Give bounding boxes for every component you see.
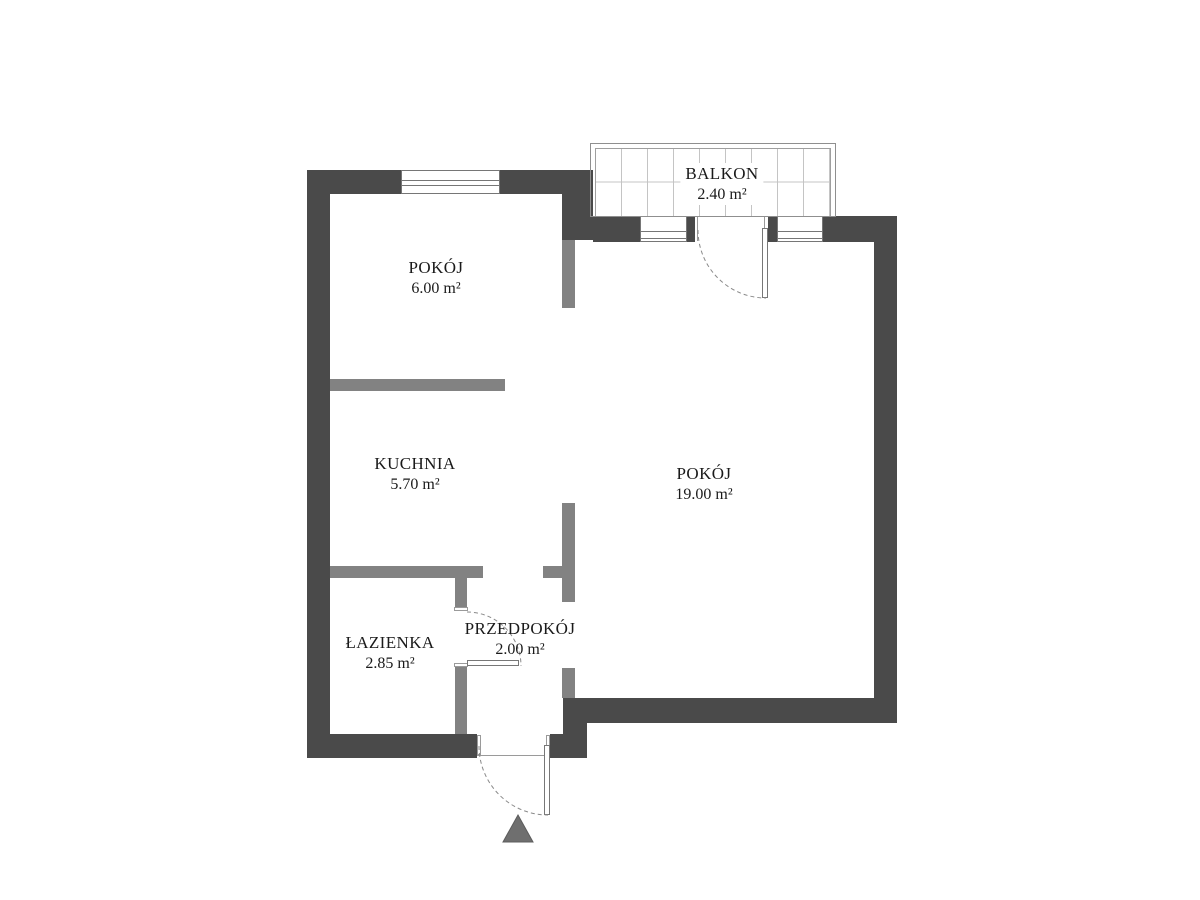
- partition-bathroom-right-lower: [455, 667, 467, 734]
- room-area: 5.70 m²: [374, 474, 455, 495]
- wall-bottom-entrance-a: [307, 734, 477, 758]
- room-label-pokoj-duzy: POKÓJ 19.00 m²: [675, 463, 732, 505]
- window-pane-line: [402, 180, 499, 181]
- wall-mullion-right: [768, 216, 777, 242]
- wall-top-bigroom-a: [593, 216, 640, 242]
- window-pane-line: [641, 231, 686, 232]
- room-label-balkon: BALKON 2.40 m²: [680, 163, 763, 205]
- room-name: ŁAZIENKA: [345, 632, 434, 653]
- window-pane-line: [402, 185, 499, 186]
- room-area: 6.00 m²: [409, 278, 464, 299]
- entrance-door-leaf: [544, 745, 550, 815]
- room-label-przedpokoj: PRZEDPOKÓJ 2.00 m²: [465, 618, 576, 660]
- wall-top-left-b: [500, 170, 593, 194]
- bathroom-door-leaf: [467, 660, 519, 666]
- window-bigroom-left: [640, 216, 687, 242]
- entrance-arrow-icon: [503, 815, 533, 842]
- door-swing-overlay: [0, 0, 1200, 900]
- wall-bottom-bigroom: [563, 698, 897, 723]
- partition-passage-vertical: [562, 503, 575, 602]
- room-area: 2.40 m²: [685, 184, 758, 205]
- room-name: POKÓJ: [409, 257, 464, 278]
- window-pane-line: [778, 231, 822, 232]
- room-name: PRZEDPOKÓJ: [465, 618, 576, 639]
- room-label-kuchnia: KUCHNIA 5.70 m²: [374, 453, 455, 495]
- window-bigroom-right: [777, 216, 823, 242]
- bathroom-door-jamb: [454, 607, 468, 611]
- balcony-door-leaf: [762, 228, 768, 298]
- partition-bathroom-right-upper: [455, 578, 467, 610]
- room-name: KUCHNIA: [374, 453, 455, 474]
- partition-passage-stub: [543, 566, 562, 578]
- balcony-door-arc: [698, 230, 766, 298]
- room-name: BALKON: [685, 163, 758, 184]
- entrance-threshold: [477, 755, 550, 756]
- wall-bottom-entrance-b: [550, 734, 587, 758]
- entrance-door-jamb: [477, 735, 481, 755]
- partition-hall-right-lower: [562, 668, 575, 698]
- room-area: 19.00 m²: [675, 484, 732, 505]
- window-pane-line: [641, 238, 686, 239]
- entrance-door-arc: [479, 746, 548, 815]
- wall-mullion-left: [687, 216, 695, 242]
- window-small-room: [401, 170, 500, 194]
- balcony-door-jamb: [697, 217, 698, 241]
- wall-right: [874, 216, 897, 723]
- wall-step: [562, 194, 593, 240]
- room-name: POKÓJ: [675, 463, 732, 484]
- window-pane-line: [778, 238, 822, 239]
- room-area: 2.85 m²: [345, 653, 434, 674]
- partition-bigroom-left-upper: [562, 240, 575, 308]
- room-area: 2.00 m²: [465, 639, 576, 660]
- room-label-lazienka: ŁAZIENKA 2.85 m²: [345, 632, 434, 674]
- wall-left: [307, 170, 330, 758]
- partition-kitchen-top: [330, 379, 505, 391]
- floor-plan: BALKON 2.40 m² POKÓJ 6.00 m² KUCHNIA 5.7…: [0, 0, 1200, 900]
- partition-bathroom-top: [330, 566, 483, 578]
- wall-top-left-a: [307, 170, 401, 194]
- bathroom-door-jamb: [454, 663, 468, 667]
- room-label-pokoj-maly: POKÓJ 6.00 m²: [409, 257, 464, 299]
